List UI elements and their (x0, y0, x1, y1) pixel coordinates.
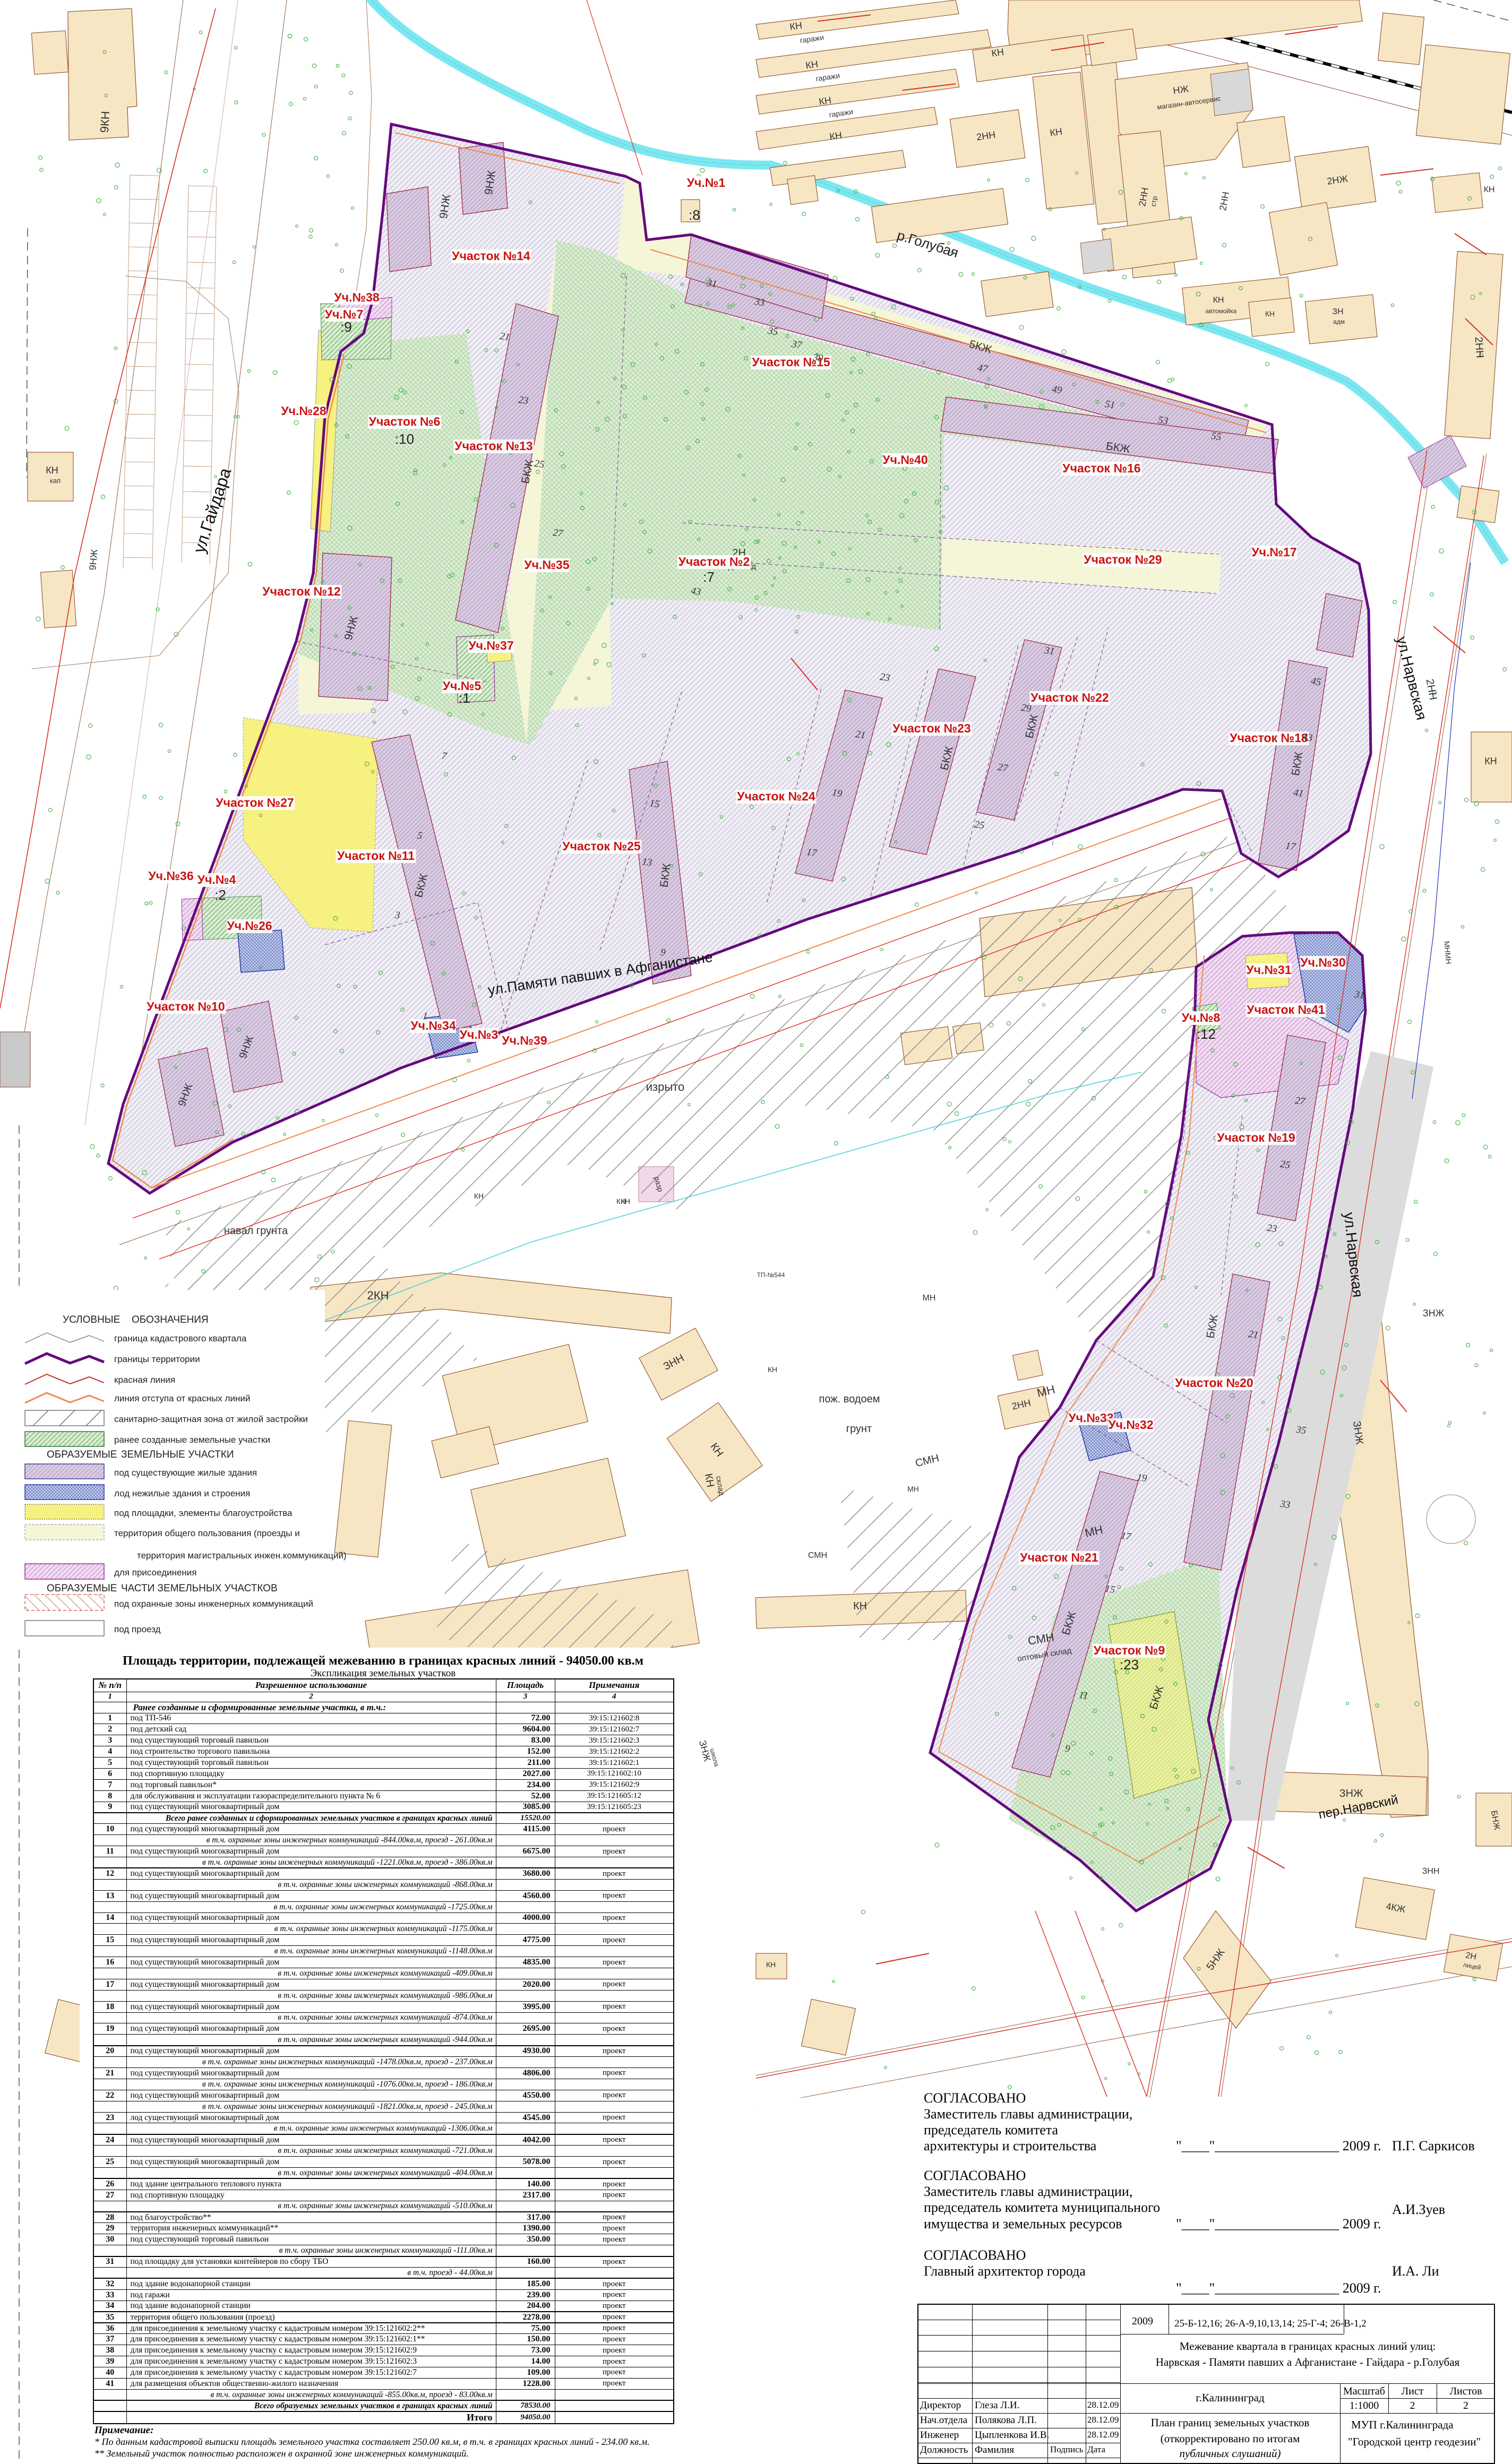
svg-text:Участок №18: Участок №18 (1230, 731, 1308, 745)
svg-text:39: 39 (812, 352, 824, 365)
svg-text:Участок №20: Участок №20 (1175, 1376, 1253, 1390)
svg-text:Участок №9: Участок №9 (1094, 1643, 1165, 1657)
svg-text:КН: КН (702, 1472, 716, 1488)
svg-text:гаражи: гаражи (829, 107, 854, 119)
svg-text:Участок №19: Участок №19 (1217, 1131, 1295, 1144)
svg-text:2НН: 2НН (1473, 337, 1486, 358)
svg-text:гаражи: гаражи (800, 33, 824, 45)
svg-text:35: 35 (1295, 1424, 1307, 1437)
svg-text:11: 11 (1078, 1690, 1089, 1702)
svg-text:КН: КН (853, 1600, 867, 1612)
svg-text:35: 35 (767, 325, 779, 338)
svg-text:Уч.№1: Уч.№1 (687, 176, 726, 189)
svg-text:19: 19 (831, 787, 843, 800)
svg-text:КН: КН (1484, 185, 1495, 194)
svg-text:9НЖ: 9НЖ (87, 548, 99, 571)
svg-text:15: 15 (1104, 1583, 1116, 1596)
svg-text:21: 21 (1248, 1329, 1259, 1341)
svg-text::7: :7 (703, 569, 715, 585)
svg-text:Уч.№40: Уч.№40 (882, 453, 927, 467)
svg-text:43: 43 (1302, 731, 1313, 744)
svg-text:23: 23 (518, 394, 529, 407)
svg-text:Участок №12: Участок №12 (262, 584, 340, 598)
svg-text:Участок №21: Участок №21 (1020, 1550, 1098, 1564)
svg-text:грунт: грунт (846, 1423, 872, 1435)
svg-text:31: 31 (1043, 645, 1055, 658)
svg-text:адм: адм (1333, 318, 1345, 325)
svg-text:ЗНН: ЗНН (1422, 1867, 1440, 1876)
svg-text::10: :10 (395, 431, 414, 447)
svg-text:Уч.№34: Уч.№34 (410, 1019, 456, 1032)
svg-text:территория общего пользования: территория общего пользования (проезды и (114, 1528, 300, 1538)
svg-text:2НН: 2НН (1217, 191, 1231, 211)
svg-text:под существующие жилые здания: под существующие жилые здания (114, 1468, 257, 1478)
svg-text:Уч.№32: Уч.№32 (1108, 1418, 1153, 1432)
svg-text:МНМН: МНМН (1442, 941, 1453, 964)
svg-text:Уч.№39: Уч.№39 (502, 1033, 547, 1047)
svg-text:41: 41 (1293, 787, 1304, 799)
svg-text:Участок №6: Участок №6 (369, 415, 441, 428)
svg-text:под проезд: под проезд (114, 1624, 161, 1634)
svg-text:СМН: СМН (808, 1551, 827, 1560)
svg-text:21: 21 (855, 729, 866, 741)
svg-text:КН: КН (1049, 126, 1063, 139)
svg-text:55: 55 (1210, 430, 1222, 443)
svg-text:КН: КН (818, 95, 832, 107)
svg-text:25: 25 (974, 819, 985, 831)
svg-text:НЖ: НЖ (1172, 83, 1189, 96)
svg-text:гаражи: гаражи (815, 71, 840, 83)
svg-text:граница кадастрового квартала: граница кадастрового квартала (114, 1333, 247, 1343)
svg-text:25: 25 (534, 458, 545, 470)
svg-text:Уч.№3: Уч.№3 (460, 1028, 498, 1041)
svg-text:31: 31 (706, 278, 718, 290)
svg-text:территория магистральных инжен: территория магистральных инжен.коммуника… (137, 1550, 347, 1561)
svg-text:53: 53 (1157, 415, 1169, 427)
svg-text:ЗНЖ: ЗНЖ (1423, 1308, 1445, 1319)
svg-text:КН: КН (805, 59, 819, 71)
svg-text:Участок №10: Участок №10 (147, 1000, 225, 1013)
svg-text:Уч.№4: Уч.№4 (197, 873, 236, 886)
svg-text:ОБОЗНАЧЕНИЯ: ОБОЗНАЧЕНИЯ (132, 1314, 209, 1325)
svg-text:КН: КН (1213, 296, 1224, 305)
svg-text:Участок №16: Участок №16 (1062, 461, 1140, 475)
svg-text:Уч.№30: Уч.№30 (1300, 955, 1345, 969)
svg-text:КН: КН (1265, 309, 1275, 318)
svg-text::8: :8 (689, 207, 700, 223)
svg-text::2: :2 (214, 887, 226, 903)
svg-text:51: 51 (1104, 399, 1116, 411)
svg-text:Участок №2: Участок №2 (678, 555, 750, 568)
svg-text:ул.Нарвская: ул.Нарвская (1394, 635, 1430, 722)
svg-text:2НН: 2НН (1424, 678, 1439, 701)
svg-text:ЗН: ЗН (1332, 307, 1343, 316)
svg-text:ОБРАЗУЕМЫЕ: ОБРАЗУЕМЫЕ (47, 1583, 117, 1594)
svg-text:19: 19 (1136, 1472, 1148, 1485)
svg-text:МН: МН (1036, 1382, 1056, 1400)
svg-text:13: 13 (641, 856, 653, 868)
svg-text::12: :12 (1197, 1026, 1216, 1042)
svg-text:КН: КН (789, 20, 803, 32)
svg-text:КН: КН (1484, 756, 1497, 766)
svg-text:санитарно-защитная зона от жил: санитарно-защитная зона от жилой застрой… (114, 1414, 308, 1424)
svg-text:ЗНЖ: ЗНЖ (1339, 1788, 1364, 1799)
svg-text:Участок №41: Участок №41 (1247, 1003, 1325, 1016)
svg-text:красная линия: красная линия (114, 1375, 175, 1385)
svg-text:СМН: СМН (914, 1452, 940, 1469)
svg-text:2КН: 2КН (367, 1289, 389, 1302)
svg-text:49: 49 (1051, 384, 1063, 397)
svg-text:Уч.№17: Уч.№17 (1251, 545, 1296, 559)
svg-text:ТП-№544: ТП-№544 (757, 1271, 785, 1279)
svg-text:МН: МН (923, 1294, 936, 1303)
svg-text:лод нежилые здания и строения: лод нежилые здания и строения (114, 1488, 250, 1498)
svg-text:21: 21 (499, 331, 511, 343)
svg-text:Участок №22: Участок №22 (1030, 691, 1109, 704)
svg-text:ОБРАЗУЕМЫЕ: ОБРАЗУЕМЫЕ (47, 1449, 117, 1460)
svg-text:Участок №13: Участок №13 (454, 439, 532, 453)
svg-text:кап: кап (50, 477, 61, 485)
svg-text:КН: КН (991, 47, 1004, 59)
svg-text:25: 25 (1279, 1159, 1291, 1171)
svg-text:33: 33 (1279, 1498, 1291, 1511)
svg-text:23: 23 (1266, 1222, 1278, 1235)
svg-text:Уч.№38: Уч.№38 (334, 290, 379, 304)
svg-text:Уч.№36: Уч.№36 (148, 869, 193, 883)
svg-text:29: 29 (1020, 702, 1032, 715)
svg-text:Уч.№37: Уч.№37 (468, 639, 513, 652)
svg-text:ЗЕМЕЛЬНЫЕ УЧАСТКИ: ЗЕМЕЛЬНЫЕ УЧАСТКИ (121, 1449, 234, 1460)
svg-text:ранее созданные земельные учас: ранее созданные земельные участки (114, 1435, 270, 1445)
svg-text:линия отступа от красных линий: линия отступа от красных линий (114, 1393, 250, 1403)
svg-text:Участок №14: Участок №14 (452, 249, 530, 263)
svg-text:КН: КН (768, 1365, 777, 1374)
svg-text:15: 15 (649, 798, 660, 810)
svg-text:Участок №23: Участок №23 (892, 721, 970, 735)
svg-text:ЧАСТИ ЗЕМЕЛЬНЫХ УЧАСТКОВ: ЧАСТИ ЗЕМЕЛЬНЫХ УЧАСТКОВ (121, 1583, 278, 1594)
svg-text:Уч.№26: Уч.№26 (227, 919, 272, 933)
svg-text:9КН: 9КН (98, 111, 112, 133)
svg-text:Участок №11: Участок №11 (337, 849, 415, 863)
svg-text:МН: МН (907, 1485, 919, 1493)
svg-text:КН: КН (829, 130, 843, 142)
svg-text:33: 33 (753, 296, 766, 309)
svg-text:автомойка: автомойка (1206, 307, 1237, 315)
svg-text:Уч.№31: Уч.№31 (1246, 963, 1291, 977)
svg-text:Участок №27: Участок №27 (216, 796, 294, 809)
svg-text:2Н: 2Н (1465, 1951, 1477, 1961)
svg-text:45: 45 (1310, 676, 1322, 688)
svg-text:КН: КН (766, 1960, 776, 1969)
svg-text::1: :1 (459, 690, 470, 706)
svg-text:пож. водоем: пож. водоем (819, 1393, 880, 1405)
svg-text:навал грунта: навал грунта (224, 1225, 288, 1237)
svg-text:УСЛОВНЫЕ: УСЛОВНЫЕ (63, 1314, 120, 1325)
svg-text:43: 43 (690, 585, 702, 598)
svg-text:КН: КН (474, 1192, 484, 1200)
svg-text::23: :23 (1120, 1657, 1139, 1673)
svg-text:ул.Гайдара: ул.Гайдара (190, 466, 235, 555)
svg-text::9: :9 (340, 319, 352, 335)
svg-text:Участок №24: Участок №24 (737, 789, 815, 803)
svg-text:КН: КН (46, 465, 58, 476)
svg-text:Уч.№8: Уч.№8 (1182, 1011, 1221, 1024)
svg-text:Участок №25: Участок №25 (562, 839, 641, 853)
svg-text:Уч.№35: Уч.№35 (524, 558, 569, 572)
svg-text:КН: КН (616, 1197, 626, 1205)
svg-text:под охранные зоны инженерных: под охранные зоны инженерных коммуникаци… (114, 1599, 313, 1609)
svg-text:изрыто: изрыто (646, 1080, 685, 1093)
svg-text:23: 23 (879, 671, 891, 684)
svg-text:для присоединения: для присоединения (114, 1567, 197, 1578)
svg-text:Участок №29: Участок №29 (1084, 553, 1162, 566)
svg-text:под площадки, элементы благоу: под площадки, элементы благоустройства (114, 1508, 293, 1518)
svg-text:границы территории: границы территории (114, 1354, 200, 1364)
svg-text:Уч.№33: Уч.№33 (1068, 1411, 1113, 1425)
svg-text:31: 31 (1353, 989, 1365, 1002)
svg-text:Уч.№28: Уч.№28 (281, 404, 326, 418)
